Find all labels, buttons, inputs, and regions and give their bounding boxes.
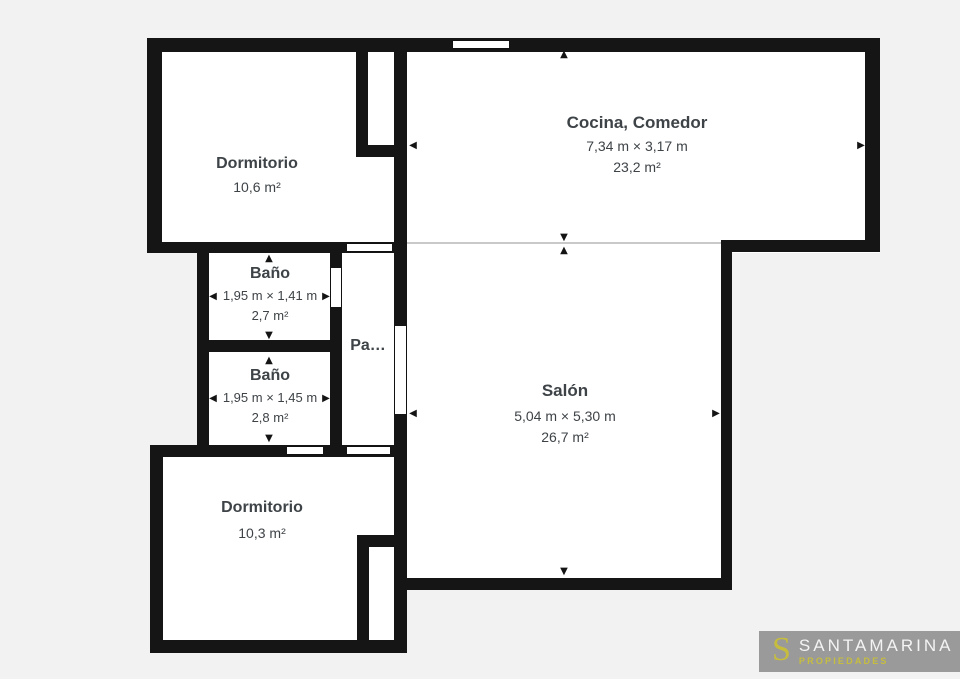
room-label-pasillo: Pa… — [350, 336, 386, 356]
room-area-value: 23,2 m² — [567, 157, 708, 178]
arrow-up-icon: ▲ — [560, 50, 568, 60]
room-name: Dormitorio — [216, 154, 298, 174]
wall — [356, 50, 368, 157]
room-dimensions: 1,95 m × 1,41 m — [223, 286, 317, 306]
room-dimensions: 7,34 m × 3,17 m — [567, 136, 708, 157]
room-area-value: 10,3 m² — [221, 524, 303, 542]
arrow-left-icon: ◀ — [409, 409, 417, 419]
door-opening — [394, 326, 407, 414]
arrow-down-icon: ▼ — [560, 233, 568, 243]
logo-tagline: PROPIEDADES — [799, 657, 954, 666]
room-label-dormitorio-bottom: Dormitorio 10,3 m² — [221, 498, 303, 542]
arrow-up-icon: ▲ — [265, 356, 273, 366]
arrow-right-icon: ▶ — [857, 141, 865, 151]
room-label-bano-1: Baño 1,95 m × 1,41 m 2,7 m² — [223, 264, 317, 326]
wall — [197, 340, 342, 352]
room-name: Cocina, Comedor — [567, 112, 708, 134]
door-opening — [330, 268, 342, 307]
wall — [150, 445, 163, 653]
arrow-right-icon: ▶ — [322, 292, 330, 302]
logo-text: SANTAMARINA PROPIEDADES — [799, 637, 954, 666]
arrow-left-icon: ◀ — [209, 394, 217, 404]
wall — [356, 145, 395, 157]
wall — [400, 578, 732, 590]
arrow-up-icon: ▲ — [560, 246, 568, 256]
room-name: Pa… — [350, 336, 386, 356]
arrow-right-icon: ▶ — [712, 409, 720, 419]
room-label-bano-2: Baño 1,95 m × 1,45 m 2,8 m² — [223, 366, 317, 428]
wall — [147, 38, 880, 52]
room-label-dormitorio-top: Dormitorio 10,6 m² — [216, 154, 298, 196]
room-label-salon: Salón 5,04 m × 5,30 m 26,7 m² — [514, 380, 616, 448]
room-name: Salón — [514, 380, 616, 402]
door-opening — [287, 446, 323, 455]
room-area-value: 2,8 m² — [223, 408, 317, 428]
wall — [865, 38, 880, 252]
wall — [357, 537, 369, 643]
door-opening — [347, 446, 390, 455]
arrow-up-icon: ▲ — [265, 254, 273, 264]
wall — [721, 240, 880, 252]
arrow-right-icon: ▶ — [322, 394, 330, 404]
room-label-cocina-comedor: Cocina, Comedor 7,34 m × 3,17 m 23,2 m² — [567, 112, 708, 178]
window-opening — [452, 40, 510, 49]
door-opening — [347, 243, 392, 252]
room-area-value: 26,7 m² — [514, 427, 616, 448]
arrow-down-icon: ▼ — [560, 567, 568, 577]
wall — [147, 38, 162, 253]
room-name: Dormitorio — [221, 498, 303, 518]
logo-brand-name: SANTAMARINA — [799, 637, 954, 654]
arrow-down-icon: ▼ — [265, 434, 273, 444]
arrow-left-icon: ◀ — [209, 292, 217, 302]
arrow-left-icon: ◀ — [409, 141, 417, 151]
agency-logo: S SANTAMARINA PROPIEDADES — [759, 631, 960, 672]
floor-plan: ▲ ▼ ◀ ▶ ▲ ▼ ◀ ▶ ▲ ▼ ◀ ▶ ▲ ▼ ◀ ▶ Dormitor… — [0, 0, 960, 679]
arrow-down-icon: ▼ — [265, 331, 273, 341]
room-dimensions: 5,04 m × 5,30 m — [514, 406, 616, 427]
room-area-value: 10,6 m² — [216, 178, 298, 196]
room-dimensions: 1,95 m × 1,45 m — [223, 388, 317, 408]
room-area-value: 2,7 m² — [223, 306, 317, 326]
room-name: Baño — [223, 366, 317, 386]
room-area-top-block — [147, 38, 880, 253]
logo-monogram: S — [772, 633, 791, 667]
wall — [721, 244, 732, 590]
room-name: Baño — [223, 264, 317, 284]
